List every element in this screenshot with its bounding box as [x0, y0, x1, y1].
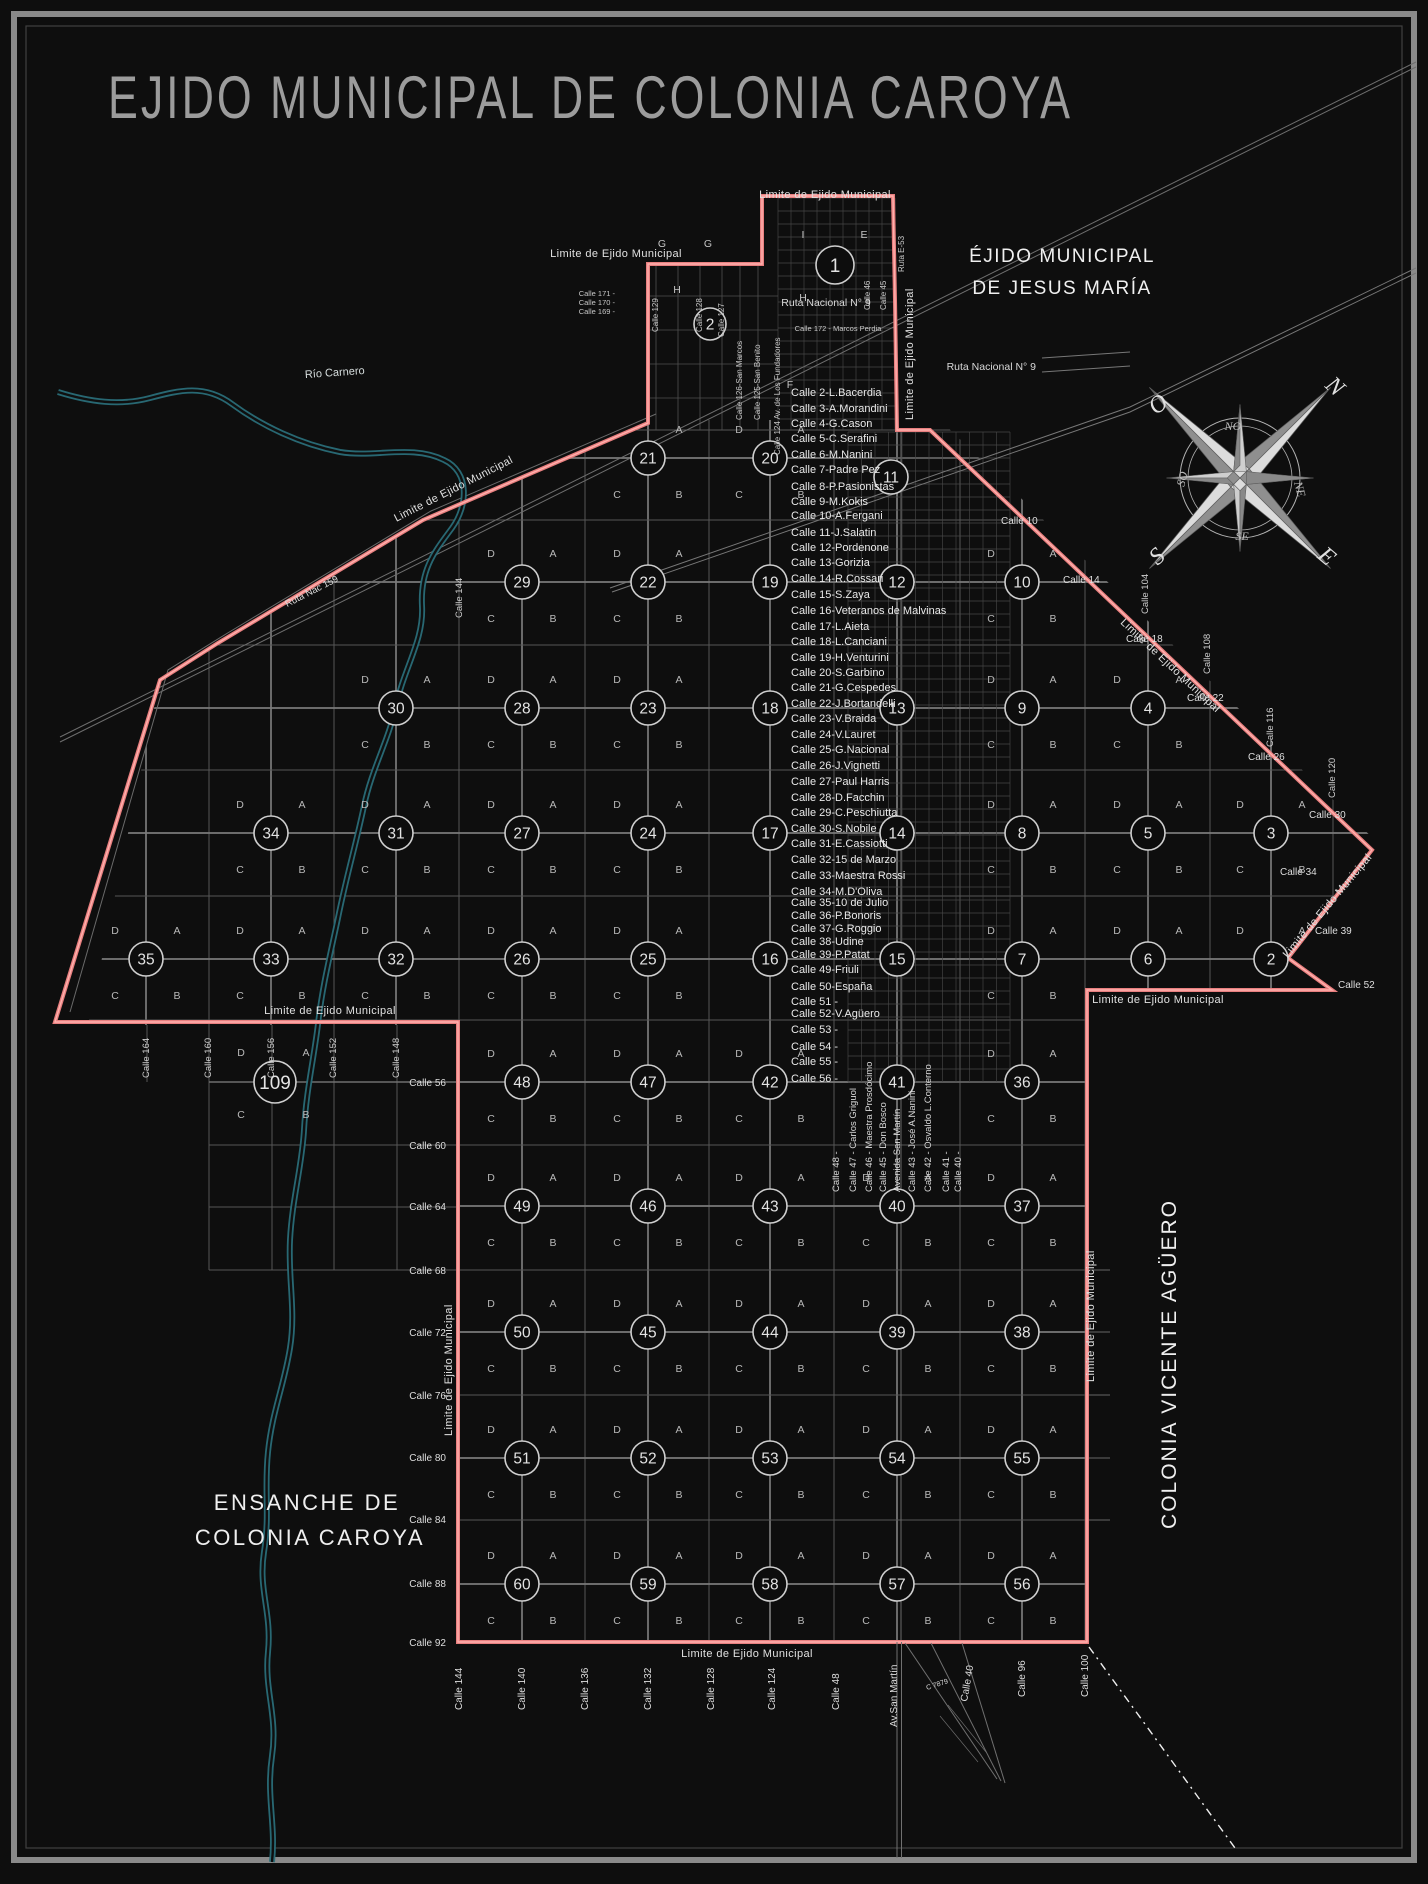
block-number: 14	[888, 826, 906, 843]
quadrant-letter: B	[298, 864, 305, 876]
block-circle: 38	[1005, 1315, 1039, 1349]
top-small-street-label: Calle 169 -	[579, 307, 616, 316]
quadrant-letter: A	[549, 1048, 556, 1060]
block-number: 17	[761, 826, 778, 843]
block-number: 21	[639, 451, 656, 468]
quadrant-letter: D	[487, 674, 495, 686]
quadrant-letter: A	[797, 1550, 804, 1562]
block-circle: 23	[631, 691, 665, 725]
block-circle: 52	[631, 1441, 665, 1475]
center-vertical-street-label: Calle 42 - Osvaldo L.Conterno	[923, 1064, 934, 1192]
block-number: 2	[706, 317, 715, 334]
quadrant-letter: D	[613, 925, 621, 937]
street-list-label: Calle 18-L.Canciani	[791, 636, 887, 648]
quadrant-letter: B	[173, 990, 180, 1002]
quadrant-letter: B	[549, 613, 556, 625]
quadrant-letter: D	[987, 1048, 995, 1060]
block-number: 30	[387, 701, 405, 718]
quadrant-letter: D	[987, 1172, 995, 1184]
quadrant-letter: C	[1236, 864, 1244, 876]
annex-street-label: Calle 152	[328, 1038, 339, 1078]
limite-label: Limite de Ejido Municipal	[550, 248, 682, 260]
block-number: 23	[639, 701, 656, 718]
block-circle: 58	[753, 1567, 787, 1601]
quadrant-letter: D	[487, 548, 495, 560]
quadrant-letter: B	[675, 739, 682, 751]
block-number: 28	[513, 701, 530, 718]
block-circle: 19	[753, 565, 787, 599]
quadrant-letter: D	[361, 674, 369, 686]
bottom-street-label: Calle 124	[767, 1667, 778, 1710]
quadrant-letter: D	[487, 1172, 495, 1184]
quadrant-letter: D	[735, 1424, 743, 1436]
quadrant-letter: A	[675, 1550, 682, 1562]
street-list-label: Calle 50-España	[791, 981, 873, 993]
street-list-label: Calle 35-10 de Julio	[791, 897, 888, 909]
block-circle: 46	[631, 1189, 665, 1223]
center-vertical-street-label: Calle 46 - Maestra Prosdócimo	[864, 1062, 875, 1192]
bottom-street-label: Calle 136	[580, 1667, 591, 1710]
left-street-label: Calle 80	[409, 1453, 446, 1464]
quadrant-letter: B	[549, 1113, 556, 1125]
street-list-label: Calle 26-J.Vignetti	[791, 760, 880, 772]
block-number: 16	[761, 952, 778, 969]
street-list-label: Calle 25-G.Nacional	[791, 744, 889, 756]
quadrant-letter: C	[735, 1113, 743, 1125]
block-number: 25	[639, 952, 656, 969]
block-circle: 9	[1005, 691, 1039, 725]
right-vertical-street-label: Calle 144	[454, 578, 465, 618]
left-street-label: Calle 92	[409, 1638, 446, 1649]
annex-street-label: Calle 156	[266, 1038, 277, 1078]
quadrant-letter: D	[613, 1298, 621, 1310]
block-number: 37	[1013, 1199, 1030, 1216]
quadrant-letter: C	[987, 990, 995, 1002]
street-list-label: Calle 39-P.Patat	[791, 949, 870, 961]
quadrant-letter: B	[549, 1363, 556, 1375]
center-vertical-street-label: Calle 45 - Don Bosco	[878, 1102, 889, 1192]
left-street-label: Calle 76	[409, 1391, 446, 1402]
quadrant-letter: C	[987, 1615, 995, 1627]
quadrant-letter: A	[1049, 674, 1056, 686]
quadrant-letter: A	[549, 799, 556, 811]
quadrant-letter: D	[613, 674, 621, 686]
quadrant-letter: C	[862, 1615, 870, 1627]
quadrant-letter: A	[173, 925, 180, 937]
quadrant-letter: B	[1049, 864, 1056, 876]
quadrant-letter: D	[1236, 925, 1244, 937]
quadrant-letter: A	[675, 674, 682, 686]
quadrant-letter: C	[1113, 739, 1121, 751]
quadrant-letter: B	[797, 1113, 804, 1125]
quadrant-letter: B	[423, 864, 430, 876]
quadrant-letter: A	[1049, 1550, 1056, 1562]
quadrant-letter: B	[423, 739, 430, 751]
quadrant-letter: B	[1175, 864, 1182, 876]
street-list-label: Calle 27-Paul Harris	[791, 776, 890, 788]
quadrant-letter: A	[924, 1298, 931, 1310]
quadrant-letter: D	[987, 1550, 995, 1562]
block-number: 45	[639, 1325, 656, 1342]
annex-street-label: Calle 164	[141, 1038, 152, 1078]
street-list-label: Calle 14-R.Cossari	[791, 573, 883, 585]
quadrant-letter: A	[549, 674, 556, 686]
quadrant-letter: B	[924, 1237, 931, 1249]
quadrant-letter: C	[361, 864, 369, 876]
block-number: 19	[761, 575, 778, 592]
block-number: 31	[387, 826, 404, 843]
limite-label: Limite de Ejido Municipal	[1085, 1250, 1097, 1382]
ruta-9-label-center: Ruta Nacional N° 9	[781, 297, 871, 309]
street-list-label: Calle 21-G.Cespedes	[791, 682, 897, 694]
quadrant-letter: D	[1113, 925, 1121, 937]
block-number: 2	[1267, 952, 1276, 969]
quadrant-letter: B	[924, 1489, 931, 1501]
street-list-label: Calle 52-V.Agüero	[791, 1008, 880, 1020]
quadrant-letter: C	[987, 613, 995, 625]
street-list-label: Calle 22-J.Bortandelli	[791, 698, 896, 710]
page-title: EJIDO MUNICIPAL DE COLONIA CAROYA	[108, 64, 1073, 131]
block-circle: 45	[631, 1315, 665, 1349]
block-letter: E	[860, 229, 867, 241]
block-number: 54	[888, 1451, 906, 1468]
quadrant-letter: A	[675, 1424, 682, 1436]
quadrant-letter: A	[1049, 1048, 1056, 1060]
right-street-label: Calle 39	[1315, 926, 1352, 937]
quadrant-letter: A	[675, 424, 682, 436]
quadrant-letter: A	[1175, 799, 1182, 811]
center-vertical-street-label: Calle 48 -	[831, 1151, 842, 1192]
block-circle: 33	[254, 942, 288, 976]
street-list-label: Calle 3-A.Morandini	[791, 403, 888, 415]
block-number: 44	[761, 1325, 779, 1342]
block-number: 57	[888, 1577, 905, 1594]
block-circle: 16	[753, 942, 787, 976]
quadrant-letter: D	[613, 548, 621, 560]
limite-label: Limite de Ejido Municipal	[264, 1005, 396, 1017]
quadrant-letter: C	[237, 1109, 245, 1121]
quadrant-letter: A	[549, 548, 556, 560]
block-circle: 60	[505, 1567, 539, 1601]
block-circle: 26	[505, 942, 539, 976]
quadrant-letter: D	[987, 548, 995, 560]
block-circle: 36	[1005, 1065, 1039, 1099]
block-number: 3	[1267, 826, 1276, 843]
street-list-label: Calle 16-Veteranos de Malvinas	[791, 605, 947, 617]
quadrant-letter: A	[302, 1047, 309, 1059]
right-street-label: Calle 52	[1338, 980, 1375, 991]
quadrant-letter: B	[549, 1237, 556, 1249]
street-list-label: Calle 15-S.Zaya	[791, 589, 871, 601]
street-list-label: Calle 4-G.Cason	[791, 418, 872, 430]
quadrant-letter: D	[613, 1424, 621, 1436]
street-list-label: Calle 24-V.Lauret	[791, 729, 876, 741]
quadrant-letter: B	[924, 1615, 931, 1627]
street-list-label: Calle 19-H.Venturini	[791, 652, 889, 664]
quadrant-letter: C	[862, 1489, 870, 1501]
quadrant-letter: C	[487, 1615, 495, 1627]
region-jesus-maria-line1: ÉJIDO MUNICIPAL	[969, 246, 1155, 267]
block-number: 33	[262, 952, 279, 969]
quadrant-letter: B	[549, 990, 556, 1002]
left-street-label: Calle 56	[409, 1078, 446, 1089]
block-circle: 12	[880, 565, 914, 599]
block-number: 7	[1018, 952, 1027, 969]
right-street-label: Calle 30	[1309, 810, 1346, 821]
quadrant-letter: B	[549, 1489, 556, 1501]
quadrant-letter: A	[675, 548, 682, 560]
quadrant-letter: A	[549, 925, 556, 937]
quadrant-letter: D	[862, 1550, 870, 1562]
street-list-label: Calle 6-M.Nanini	[791, 449, 872, 461]
block-number: 40	[888, 1199, 906, 1216]
left-street-label: Calle 68	[409, 1266, 446, 1277]
quadrant-letter: C	[735, 1615, 743, 1627]
quadrant-letter: C	[487, 864, 495, 876]
quadrant-letter: C	[735, 1363, 743, 1375]
quadrant-letter: D	[487, 799, 495, 811]
quadrant-letter: C	[613, 864, 621, 876]
quadrant-letter: D	[987, 1424, 995, 1436]
quadrant-letter: D	[862, 1298, 870, 1310]
quadrant-letter: A	[423, 799, 430, 811]
block-circle: 22	[631, 565, 665, 599]
block-circle: 10	[1005, 565, 1039, 599]
quadrant-letter: B	[797, 1237, 804, 1249]
block-number: 6	[1144, 952, 1153, 969]
block-circle: 57	[880, 1567, 914, 1601]
quadrant-letter: B	[1049, 739, 1056, 751]
block-circle: 54	[880, 1441, 914, 1475]
bottom-street-label: Calle 132	[643, 1667, 654, 1710]
quadrant-letter: A	[1175, 925, 1182, 937]
quadrant-letter: C	[487, 739, 495, 751]
street-list-label: Calle 13-Gorizia	[791, 557, 871, 569]
quadrant-letter: D	[236, 799, 244, 811]
quadrant-letter: C	[487, 613, 495, 625]
quadrant-letter: C	[236, 864, 244, 876]
top-vertical-street-label: Calle 125-San Benito	[753, 344, 762, 420]
quadrant-letter: C	[987, 1237, 995, 1249]
block-number: 59	[639, 1577, 656, 1594]
right-vertical-street-label: Calle 104	[1140, 574, 1151, 614]
quadrant-letter: D	[735, 1048, 743, 1060]
left-street-label: Calle 88	[409, 1579, 446, 1590]
quadrant-letter: D	[613, 1172, 621, 1184]
block-number: 35	[137, 952, 154, 969]
quadrant-letter: D	[236, 925, 244, 937]
street-list-label: Calle 23-V.Braida	[791, 713, 877, 725]
quadrant-letter: C	[613, 1363, 621, 1375]
quadrant-letter: C	[613, 613, 621, 625]
street-list-label: Calle 32-15 de Marzo	[791, 854, 896, 866]
quadrant-letter: C	[361, 739, 369, 751]
block-circle: 27	[505, 816, 539, 850]
quadrant-letter: A	[1049, 925, 1056, 937]
quadrant-letter: C	[735, 1237, 743, 1249]
limite-label: Limite de Ejido Municipal	[904, 288, 916, 420]
street-list-label: Calle 55 -	[791, 1056, 838, 1068]
quadrant-letter: A	[797, 1424, 804, 1436]
quadrant-letter: A	[1049, 799, 1056, 811]
quadrant-letter: A	[1049, 1298, 1056, 1310]
block-circle: 47	[631, 1065, 665, 1099]
quadrant-letter: B	[675, 1113, 682, 1125]
quadrant-letter: A	[924, 1424, 931, 1436]
quadrant-letter: A	[675, 1048, 682, 1060]
map-background	[0, 0, 1428, 1884]
block-number: 49	[513, 1199, 530, 1216]
block-number: 9	[1018, 701, 1027, 718]
block-circle: 50	[505, 1315, 539, 1349]
quadrant-letter: D	[237, 1047, 245, 1059]
left-street-label: Calle 72	[409, 1328, 446, 1339]
block-number: 47	[639, 1075, 656, 1092]
quadrant-letter: A	[924, 1550, 931, 1562]
block-number: 29	[513, 575, 530, 592]
block-circle: 40	[880, 1189, 914, 1223]
quadrant-letter: A	[298, 799, 305, 811]
block-circle: 5	[1131, 816, 1165, 850]
quadrant-letter: C	[987, 1113, 995, 1125]
block-number: 51	[513, 1451, 530, 1468]
block-circle: 8	[1005, 816, 1039, 850]
bottom-street-label: Calle 100	[1080, 1654, 1091, 1697]
ejido-map: EJIDO MUNICIPAL DE COLONIA CAROYA	[0, 0, 1428, 1884]
quadrant-letter: C	[862, 1363, 870, 1375]
street-list-label: Calle 31-E.Cassiotti	[791, 838, 888, 850]
right-vertical-street-label: Calle 120	[1327, 758, 1338, 798]
block-number: 26	[513, 952, 530, 969]
quadrant-letter: B	[924, 1363, 931, 1375]
center-vertical-street-label: Calle 47 - Carlos Griguol	[848, 1088, 859, 1192]
quadrant-letter: A	[549, 1424, 556, 1436]
block-number: 34	[262, 826, 280, 843]
quadrant-letter: B	[1049, 1363, 1056, 1375]
block-circle: 53	[753, 1441, 787, 1475]
top-vertical-street-label: Ruta E-53	[897, 235, 906, 272]
quadrant-letter: D	[111, 925, 119, 937]
region-ensanche-line1: ENSANCHE DE	[214, 1490, 400, 1515]
region-vicente-aguero: COLONIA VICENTE AGÜERO	[1158, 1199, 1181, 1529]
block-circle: 35	[129, 942, 163, 976]
street-list-label: Calle 7-Padre Pez	[791, 464, 880, 476]
quadrant-letter: B	[675, 1615, 682, 1627]
quadrant-letter: B	[675, 1237, 682, 1249]
block-number: 15	[888, 952, 905, 969]
street-list-label: Calle 36-P.Bonoris	[791, 910, 882, 922]
quadrant-letter: D	[987, 674, 995, 686]
block-circle: 31	[379, 816, 413, 850]
left-street-label: Calle 64	[409, 1202, 446, 1213]
quadrant-letter: C	[987, 1489, 995, 1501]
quadrant-letter: C	[361, 990, 369, 1002]
street-list-label: Calle 33-Maestra Rossi	[791, 870, 905, 882]
top-vertical-street-label: Calle 124 Av. de Los Fundadores	[773, 337, 782, 455]
block-number: 22	[639, 575, 656, 592]
top-small-street-label: Calle 170 -	[579, 298, 616, 307]
quadrant-letter: C	[613, 1489, 621, 1501]
top-small-street-label: Calle 171 -	[579, 289, 616, 298]
quadrant-letter: D	[735, 1550, 743, 1562]
block-number: 12	[888, 575, 905, 592]
street-list-label: Calle 2-L.Bacerdia	[791, 387, 882, 399]
quadrant-letter: B	[675, 489, 682, 501]
right-street-label: Calle 10	[1001, 516, 1038, 527]
street-list-label: Calle 5-C.Serafini	[791, 433, 877, 445]
quadrant-letter: D	[361, 799, 369, 811]
quadrant-letter: B	[549, 1615, 556, 1627]
quadrant-letter: B	[1049, 613, 1056, 625]
bottom-street-label: Calle 140	[517, 1667, 528, 1710]
quadrant-letter: B	[1049, 1489, 1056, 1501]
quadrant-letter: D	[1113, 799, 1121, 811]
quadrant-letter: C	[613, 489, 621, 501]
quadrant-letter: D	[487, 1298, 495, 1310]
quadrant-letter: B	[298, 990, 305, 1002]
block-number: 42	[761, 1075, 778, 1092]
quadrant-letter: A	[1049, 1424, 1056, 1436]
quadrant-letter: A	[423, 674, 430, 686]
quadrant-letter: B	[302, 1109, 309, 1121]
top-small-street-label: Calle 172 - Marcos Perdia	[795, 324, 883, 333]
right-vertical-street-label: Calle 108	[1202, 634, 1213, 674]
quadrant-letter: B	[423, 990, 430, 1002]
street-list-label: Calle 51 -	[791, 996, 838, 1008]
block-letter: G	[704, 238, 712, 250]
block-circle: 7	[1005, 942, 1039, 976]
block-circle: 4	[1131, 691, 1165, 725]
quadrant-letter: D	[613, 799, 621, 811]
block-number: 36	[1013, 1075, 1030, 1092]
quadrant-letter: B	[675, 1363, 682, 1375]
block-circle: 15	[880, 942, 914, 976]
block-circle: 29	[505, 565, 539, 599]
quadrant-letter: A	[675, 1298, 682, 1310]
block-letter: I	[802, 229, 805, 241]
center-vertical-street-label: Calle 40 -	[953, 1151, 964, 1192]
quadrant-letter: B	[675, 990, 682, 1002]
block-circle: 3	[1254, 816, 1288, 850]
block-circle: 56	[1005, 1567, 1039, 1601]
street-list-label: Calle 53 -	[791, 1024, 838, 1036]
quadrant-letter: A	[675, 1172, 682, 1184]
quadrant-letter: B	[675, 1489, 682, 1501]
street-list-label: Calle 30-S.Nobile	[791, 823, 877, 835]
quadrant-letter: D	[487, 1550, 495, 1562]
bottom-street-label: Calle 96	[1017, 1660, 1028, 1697]
top-vertical-street-label: Calle 45	[879, 280, 888, 310]
block-circle: 42	[753, 1065, 787, 1099]
block-circle: 37	[1005, 1189, 1039, 1223]
street-list-label: Calle 38-Udine	[791, 936, 864, 948]
quadrant-letter: A	[797, 1172, 804, 1184]
left-street-label: Calle 60	[409, 1141, 446, 1152]
quadrant-letter: D	[361, 925, 369, 937]
block-number: 48	[513, 1075, 530, 1092]
block-circle: 6	[1131, 942, 1165, 976]
top-vertical-street-label: Calle 128	[695, 298, 704, 332]
block-number: 60	[513, 1577, 531, 1594]
quadrant-letter: D	[487, 925, 495, 937]
block-circle: 21	[631, 441, 665, 475]
region-jesus-maria-line2: DE JESUS MARÍA	[972, 278, 1151, 299]
block-circle: 51	[505, 1441, 539, 1475]
quadrant-letter: B	[1049, 1113, 1056, 1125]
block-number: 32	[387, 952, 404, 969]
quadrant-letter: C	[613, 1615, 621, 1627]
street-list-label: Calle 12-Pordenone	[791, 542, 889, 554]
